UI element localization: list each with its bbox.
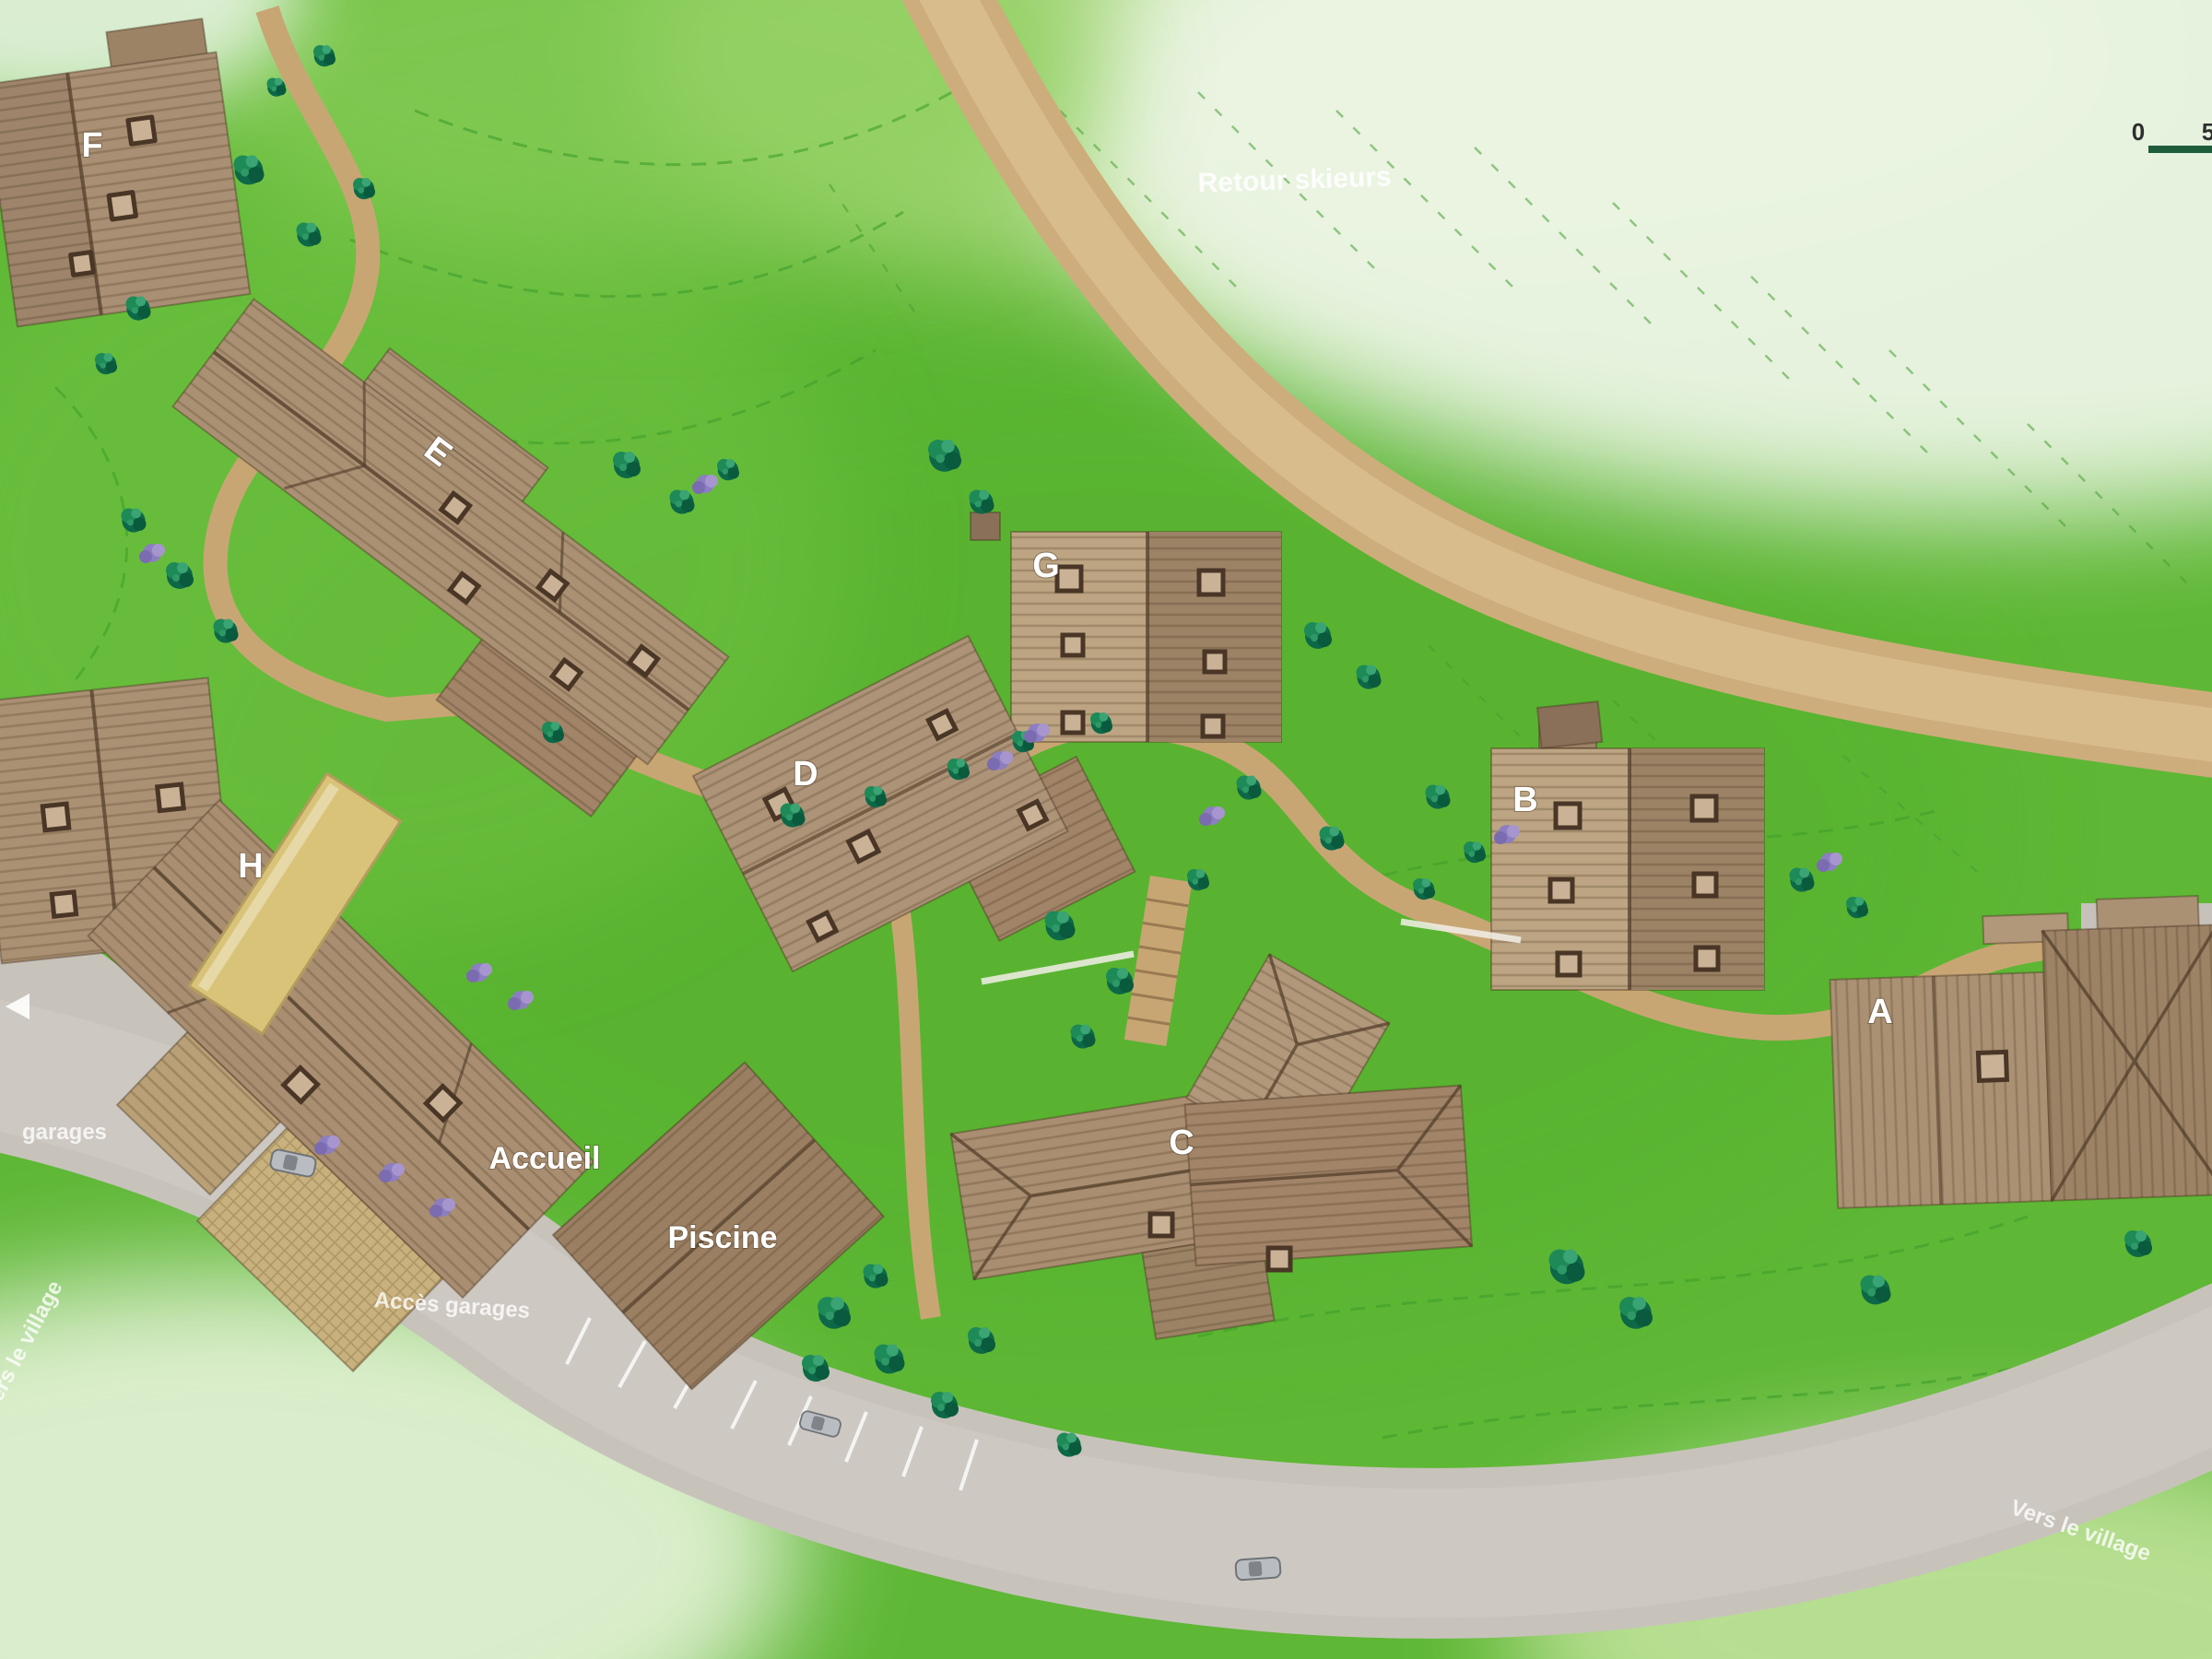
- building-b: [1491, 724, 1764, 990]
- site-plan-canvas: Retour skieurs F E G D B H A C Accueil P…: [0, 0, 2212, 1659]
- building-d-label: D: [793, 755, 818, 794]
- reception-label: Accueil: [489, 1141, 601, 1176]
- building-h-label: H: [238, 847, 263, 886]
- driving-car: [1235, 1557, 1280, 1580]
- pool-label: Piscine: [667, 1220, 777, 1255]
- building-b-annex: [1537, 701, 1602, 748]
- building-c-label: C: [1169, 1124, 1194, 1162]
- scale-start-label: 0: [2132, 118, 2145, 146]
- building-g-annex: [971, 512, 1000, 540]
- building-b-label: B: [1512, 781, 1537, 819]
- garage-access-left-label: garages: [22, 1120, 107, 1145]
- building-a-label: A: [1867, 993, 1892, 1031]
- building-g-label: G: [1032, 547, 1060, 585]
- resort-site-plan: Retour skieurs F E G D B H A C Accueil P…: [0, 0, 2212, 1659]
- building-f-label: F: [81, 126, 102, 165]
- scale-end-label: 5: [2202, 118, 2212, 146]
